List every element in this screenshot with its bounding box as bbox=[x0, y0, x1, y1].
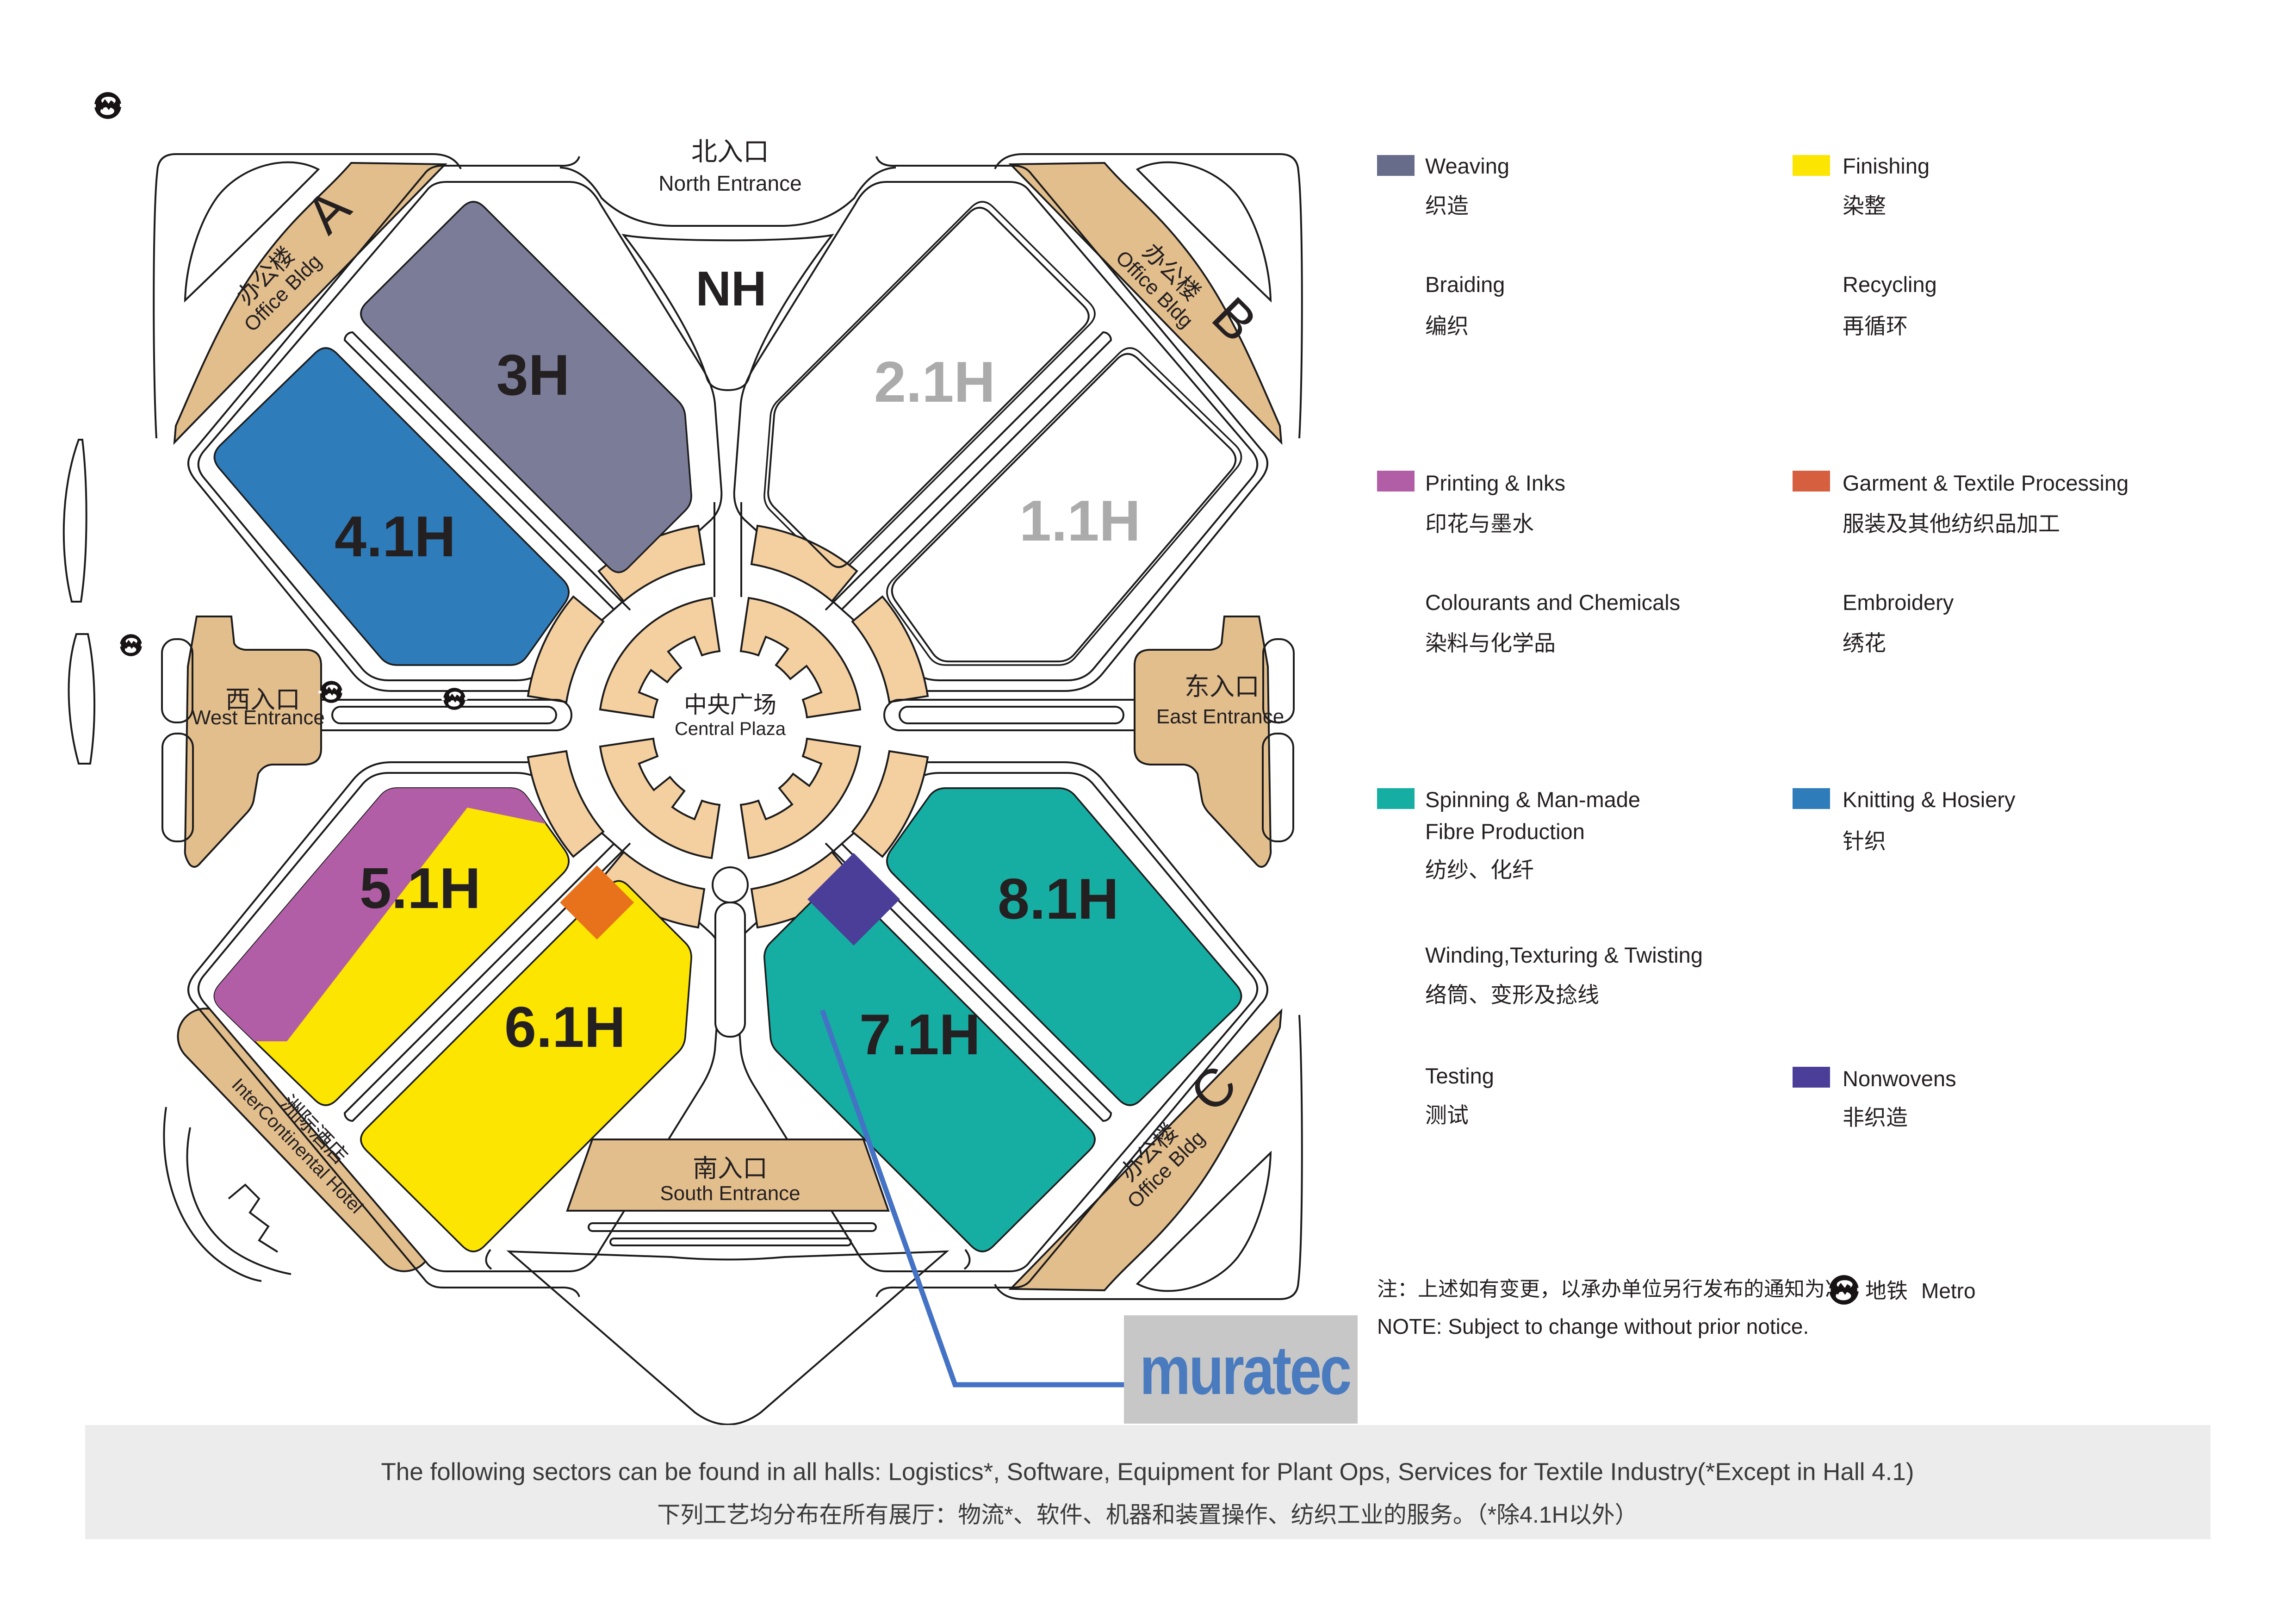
svg-text:Fibre Production: Fibre Production bbox=[1425, 819, 1585, 844]
svg-text:8.1H: 8.1H bbox=[998, 867, 1119, 931]
svg-text:Knitting & Hosiery: Knitting & Hosiery bbox=[1843, 787, 2016, 812]
svg-text:Finishing: Finishing bbox=[1843, 154, 1930, 178]
svg-text:注：上述如有变更，以承办单位另行发布的通知为准。: 注：上述如有变更，以承办单位另行发布的通知为准。 bbox=[1377, 1278, 1866, 1300]
svg-text:Printing & Inks: Printing & Inks bbox=[1425, 471, 1565, 495]
svg-text:非织造: 非织造 bbox=[1843, 1105, 1908, 1130]
svg-text:纺纱、化纤: 纺纱、化纤 bbox=[1425, 858, 1534, 882]
svg-text:Testing: Testing bbox=[1425, 1064, 1494, 1088]
svg-text:West Entrance: West Entrance bbox=[192, 706, 325, 729]
svg-text:Garment & Textile Processing: Garment & Textile Processing bbox=[1843, 471, 2128, 495]
svg-text:染料与化学品: 染料与化学品 bbox=[1425, 631, 1556, 655]
svg-text:Spinning & Man-made: Spinning & Man-made bbox=[1425, 787, 1640, 812]
svg-text:1.1H: 1.1H bbox=[1019, 489, 1141, 553]
svg-text:北入口: 北入口 bbox=[691, 137, 769, 166]
svg-text:muratec: muratec bbox=[1140, 1332, 1351, 1409]
svg-text:东入口: 东入口 bbox=[1185, 673, 1260, 701]
svg-text:地铁: 地铁 bbox=[1865, 1279, 1908, 1303]
svg-text:2.1H: 2.1H bbox=[874, 350, 995, 414]
svg-text:Nonwovens: Nonwovens bbox=[1843, 1066, 1956, 1091]
svg-text:3H: 3H bbox=[496, 343, 570, 407]
svg-text:7.1H: 7.1H bbox=[859, 1003, 980, 1067]
svg-text:5.1H: 5.1H bbox=[360, 857, 481, 921]
svg-text:NOTE: Subject to change withou: NOTE: Subject to change without prior no… bbox=[1377, 1314, 1809, 1338]
svg-text:测试: 测试 bbox=[1425, 1103, 1469, 1127]
svg-text:East Entrance: East Entrance bbox=[1156, 705, 1284, 728]
svg-text:NH: NH bbox=[695, 261, 766, 316]
svg-text:North Entrance: North Entrance bbox=[658, 171, 801, 195]
svg-text:中央广场: 中央广场 bbox=[684, 692, 776, 718]
svg-text:Weaving: Weaving bbox=[1425, 154, 1509, 178]
svg-text:Braiding: Braiding bbox=[1425, 272, 1505, 297]
svg-text:下列工艺均分布在所有展厅：物流*、软件、机器和装置操作、纺织: 下列工艺均分布在所有展厅：物流*、软件、机器和装置操作、纺织工业的服务。（*除4… bbox=[657, 1502, 1638, 1528]
svg-text:Central Plaza: Central Plaza bbox=[675, 719, 786, 739]
svg-text:South Entrance: South Entrance bbox=[660, 1182, 800, 1205]
svg-text:6.1H: 6.1H bbox=[504, 996, 626, 1059]
svg-text:Winding,Texturing & Twisting: Winding,Texturing & Twisting bbox=[1425, 943, 1703, 967]
svg-text:The following sectors can be f: The following sectors can be found in al… bbox=[381, 1458, 1914, 1486]
svg-text:染整: 染整 bbox=[1843, 193, 1886, 218]
svg-text:编织: 编织 bbox=[1425, 314, 1469, 338]
svg-text:再循环: 再循环 bbox=[1843, 314, 1908, 338]
svg-text:服装及其他纺织品加工: 服装及其他纺织品加工 bbox=[1843, 511, 2060, 536]
svg-text:针织: 针织 bbox=[1843, 829, 1886, 853]
svg-text:织造: 织造 bbox=[1425, 193, 1469, 218]
svg-text:Recycling: Recycling bbox=[1843, 272, 1937, 297]
svg-text:4.1H: 4.1H bbox=[335, 505, 456, 569]
svg-text:绣花: 绣花 bbox=[1843, 631, 1886, 655]
svg-text:Metro: Metro bbox=[1921, 1279, 1976, 1303]
svg-text:南入口: 南入口 bbox=[693, 1155, 768, 1182]
svg-text:印花与墨水: 印花与墨水 bbox=[1425, 511, 1534, 536]
svg-text:Colourants and Chemicals: Colourants and Chemicals bbox=[1425, 590, 1680, 615]
svg-text:络筒、变形及捻线: 络筒、变形及捻线 bbox=[1425, 983, 1599, 1007]
svg-text:Embroidery: Embroidery bbox=[1843, 590, 1954, 615]
